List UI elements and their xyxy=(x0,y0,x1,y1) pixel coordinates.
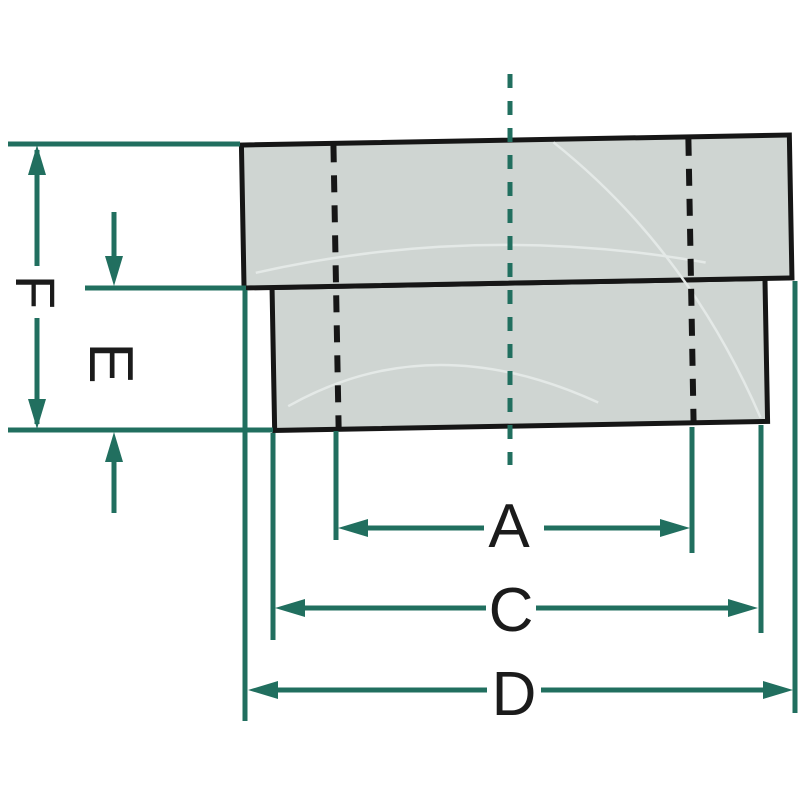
dim-label-f: F xyxy=(4,275,67,309)
part-flange-section xyxy=(241,135,792,288)
part-cross-section xyxy=(241,135,794,431)
arrowhead-e-down xyxy=(105,256,123,286)
dim-label-e: E xyxy=(76,342,145,383)
arrowhead-f-down xyxy=(28,399,46,429)
dim-label-a: A xyxy=(488,492,530,561)
arrowhead-c-left xyxy=(275,599,305,617)
arrowhead-a-left xyxy=(338,519,368,537)
dim-label-c: C xyxy=(489,576,534,645)
dim-label-d: D xyxy=(492,660,537,729)
arrowhead-c-right xyxy=(728,599,758,617)
arrowhead-a-right xyxy=(660,519,690,537)
arrowhead-f-up xyxy=(28,145,46,175)
dimension-diagram: F E A C D xyxy=(0,0,800,800)
arrowhead-e-up xyxy=(105,432,123,462)
arrowhead-d-right xyxy=(763,681,793,699)
technical-drawing-canvas: F E A C D xyxy=(0,0,800,800)
arrowhead-d-left xyxy=(248,681,278,699)
